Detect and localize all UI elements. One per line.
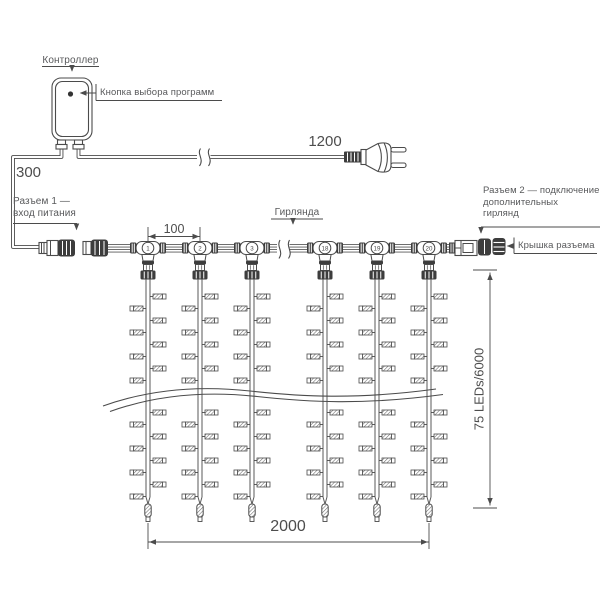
led-cap bbox=[392, 342, 396, 347]
led-bulb bbox=[205, 482, 215, 487]
led-bulb bbox=[257, 482, 267, 487]
garland-wiring-diagram: 123181920 bbox=[0, 0, 600, 600]
led-cap bbox=[163, 366, 167, 371]
led-cap bbox=[163, 410, 167, 415]
led-cap bbox=[359, 446, 363, 451]
led-cap bbox=[215, 318, 219, 323]
plug-prong bbox=[391, 148, 406, 153]
wire-break-icon bbox=[279, 240, 281, 259]
led-bulb bbox=[186, 354, 196, 359]
led-bulb bbox=[257, 458, 267, 463]
led-cap bbox=[307, 330, 311, 335]
led-bulb bbox=[186, 446, 196, 451]
led-cap bbox=[234, 306, 238, 311]
led-bulb bbox=[205, 342, 215, 347]
led-bulb bbox=[415, 378, 425, 383]
led-cap bbox=[267, 458, 271, 463]
led-cap bbox=[163, 318, 167, 323]
led-cap bbox=[340, 294, 344, 299]
led-cap bbox=[444, 294, 448, 299]
drop-number: 1 bbox=[146, 245, 150, 252]
drop-number: 18 bbox=[322, 245, 329, 252]
t-connector-wing bbox=[359, 243, 366, 254]
led-cap bbox=[359, 422, 363, 427]
led-cap bbox=[182, 470, 186, 475]
string-end-led bbox=[249, 504, 255, 517]
led-bulb bbox=[205, 458, 215, 463]
led-bulb bbox=[382, 342, 392, 347]
led-bulb bbox=[330, 342, 340, 347]
led-cap bbox=[411, 354, 415, 359]
drop-number: 3 bbox=[250, 245, 254, 252]
led-bulb bbox=[238, 354, 248, 359]
led-cap bbox=[444, 318, 448, 323]
led-cap bbox=[359, 470, 363, 475]
led-cap bbox=[267, 294, 271, 299]
t-connector-wing bbox=[234, 243, 241, 254]
led-cap bbox=[163, 342, 167, 347]
led-cap bbox=[392, 458, 396, 463]
led-bulb bbox=[311, 330, 321, 335]
led-cap bbox=[307, 378, 311, 383]
connector-cap bbox=[493, 238, 506, 255]
string-end-led bbox=[322, 504, 328, 517]
led-bulb bbox=[382, 434, 392, 439]
led-cap bbox=[182, 494, 186, 499]
led-bulb bbox=[311, 354, 321, 359]
led-cap bbox=[444, 366, 448, 371]
led-bulb bbox=[153, 458, 163, 463]
cable-break-icon bbox=[208, 149, 210, 167]
led-bulb bbox=[363, 354, 373, 359]
led-bulb bbox=[434, 410, 444, 415]
led-bulb bbox=[205, 434, 215, 439]
led-bulb bbox=[311, 470, 321, 475]
garland-drop: 19 bbox=[359, 242, 395, 522]
string-end-tip bbox=[198, 517, 202, 522]
string-end-led bbox=[197, 504, 203, 517]
plug-prong bbox=[391, 163, 406, 168]
string-end-tip bbox=[323, 517, 327, 522]
collar bbox=[321, 265, 330, 271]
collar bbox=[144, 265, 153, 271]
led-bulb bbox=[134, 446, 144, 451]
led-bulb bbox=[238, 330, 248, 335]
dim-2000-label: 2000 bbox=[256, 518, 320, 536]
led-cap bbox=[392, 434, 396, 439]
led-cap bbox=[307, 354, 311, 359]
led-cap bbox=[340, 482, 344, 487]
led-bulb bbox=[363, 306, 373, 311]
drop-number: 20 bbox=[426, 245, 433, 252]
led-bulb bbox=[330, 482, 340, 487]
led-bulb bbox=[186, 306, 196, 311]
led-cap bbox=[267, 366, 271, 371]
led-bulb bbox=[134, 306, 144, 311]
led-bulb bbox=[415, 446, 425, 451]
led-bulb bbox=[134, 354, 144, 359]
led-cap bbox=[411, 422, 415, 427]
stem-band bbox=[194, 261, 206, 265]
string-end-tip bbox=[427, 517, 431, 522]
led-cap bbox=[392, 410, 396, 415]
led-cap bbox=[182, 306, 186, 311]
led-cap bbox=[163, 434, 167, 439]
led-bulb bbox=[330, 434, 340, 439]
dim-1200-label: 1200 bbox=[303, 133, 347, 150]
power-cable-right bbox=[79, 148, 346, 166]
led-bulb bbox=[205, 318, 215, 323]
led-bulb bbox=[434, 342, 444, 347]
led-bulb bbox=[330, 458, 340, 463]
led-cap bbox=[163, 458, 167, 463]
connector1-label: Разъем 1 — вход питания bbox=[13, 196, 76, 219]
led-bulb bbox=[415, 422, 425, 427]
led-bulb bbox=[363, 422, 373, 427]
led-bulb bbox=[134, 422, 144, 427]
t-connector-wing bbox=[441, 243, 448, 254]
led-cap bbox=[215, 410, 219, 415]
led-bulb bbox=[382, 294, 392, 299]
connector-1 bbox=[39, 240, 75, 257]
program-button-label: Кнопка выбора программ bbox=[100, 87, 214, 98]
connector-2 bbox=[449, 239, 491, 256]
led-bulb bbox=[415, 306, 425, 311]
led-cap bbox=[163, 482, 167, 487]
led-bulb bbox=[415, 330, 425, 335]
led-cap bbox=[130, 354, 134, 359]
led-bulb bbox=[363, 470, 373, 475]
collar bbox=[373, 265, 382, 271]
t-connector-wing bbox=[337, 243, 344, 254]
stem-band bbox=[246, 261, 258, 265]
led-cap bbox=[411, 330, 415, 335]
led-cap bbox=[267, 410, 271, 415]
led-bulb bbox=[434, 458, 444, 463]
led-cap bbox=[340, 318, 344, 323]
dim-height-label: 75 LEDs/6000 bbox=[472, 320, 488, 459]
dim-300-label: 300 bbox=[16, 164, 41, 181]
string-end-led bbox=[426, 504, 432, 517]
led-bulb bbox=[153, 410, 163, 415]
garland-drop: 20 bbox=[411, 242, 447, 522]
led-bulb bbox=[153, 294, 163, 299]
led-bulb bbox=[382, 366, 392, 371]
collar bbox=[196, 265, 205, 271]
led-cap bbox=[340, 458, 344, 463]
led-bulb bbox=[257, 342, 267, 347]
connector1-label-line2: вход питания bbox=[13, 208, 76, 220]
garland-drop: 3 bbox=[234, 242, 270, 522]
led-bulb bbox=[238, 306, 248, 311]
curtain-layer: 123181920 bbox=[130, 242, 447, 522]
led-bulb bbox=[257, 434, 267, 439]
led-bulb bbox=[186, 378, 196, 383]
led-cap bbox=[182, 378, 186, 383]
led-cap bbox=[444, 434, 448, 439]
led-bulb bbox=[257, 410, 267, 415]
connector2-label-line2: дополнительных bbox=[483, 197, 600, 209]
connector1-label-line1: Разъем 1 — bbox=[13, 196, 76, 208]
led-bulb bbox=[363, 378, 373, 383]
led-bulb bbox=[330, 294, 340, 299]
led-cap bbox=[340, 366, 344, 371]
led-cap bbox=[234, 354, 238, 359]
led-bulb bbox=[153, 434, 163, 439]
led-bulb bbox=[153, 342, 163, 347]
led-bulb bbox=[153, 318, 163, 323]
led-bulb bbox=[238, 470, 248, 475]
led-cap bbox=[307, 470, 311, 475]
led-bulb bbox=[311, 446, 321, 451]
string-wire bbox=[198, 280, 202, 505]
string-end-tip bbox=[146, 517, 150, 522]
led-cap bbox=[182, 354, 186, 359]
led-bulb bbox=[382, 410, 392, 415]
led-bulb bbox=[186, 470, 196, 475]
led-cap bbox=[215, 342, 219, 347]
led-bulb bbox=[134, 330, 144, 335]
string-wire bbox=[375, 280, 379, 505]
connector2-label-line3: гирлянд bbox=[483, 208, 600, 220]
led-bulb bbox=[257, 294, 267, 299]
led-bulb bbox=[363, 494, 373, 499]
led-bulb bbox=[134, 378, 144, 383]
led-cap bbox=[234, 330, 238, 335]
led-bulb bbox=[434, 366, 444, 371]
led-cap bbox=[130, 422, 134, 427]
string-wire bbox=[323, 280, 327, 505]
led-cap bbox=[359, 306, 363, 311]
led-bulb bbox=[134, 494, 144, 499]
connector-1-mate bbox=[83, 240, 108, 257]
program-button-dot bbox=[68, 91, 73, 96]
led-bulb bbox=[363, 330, 373, 335]
garland-drop: 1 bbox=[130, 242, 166, 522]
led-cap bbox=[359, 378, 363, 383]
led-cap bbox=[234, 446, 238, 451]
stem-band bbox=[371, 261, 383, 265]
led-bulb bbox=[311, 422, 321, 427]
led-bulb bbox=[415, 494, 425, 499]
string-end-tip bbox=[250, 517, 254, 522]
led-cap bbox=[234, 422, 238, 427]
led-bulb bbox=[311, 306, 321, 311]
led-bulb bbox=[186, 330, 196, 335]
led-bulb bbox=[311, 494, 321, 499]
led-cap bbox=[130, 306, 134, 311]
led-cap bbox=[444, 410, 448, 415]
led-cap bbox=[444, 482, 448, 487]
diagram-page: 123181920 bbox=[0, 0, 600, 600]
led-cap bbox=[411, 470, 415, 475]
string-end-tip bbox=[375, 517, 379, 522]
led-cap bbox=[307, 446, 311, 451]
string-end-led bbox=[374, 504, 380, 517]
led-cap bbox=[392, 294, 396, 299]
t-connector-wing bbox=[212, 243, 219, 254]
led-cap bbox=[307, 306, 311, 311]
garland-drop: 2 bbox=[182, 242, 218, 522]
controller-label: Контроллер bbox=[42, 55, 99, 66]
collar bbox=[248, 265, 257, 271]
led-bulb bbox=[205, 366, 215, 371]
string-wire bbox=[146, 280, 150, 505]
led-cap bbox=[340, 434, 344, 439]
led-cap bbox=[444, 458, 448, 463]
led-cap bbox=[215, 294, 219, 299]
led-cap bbox=[359, 330, 363, 335]
led-bulb bbox=[153, 482, 163, 487]
led-bulb bbox=[363, 446, 373, 451]
led-cap bbox=[130, 446, 134, 451]
led-bulb bbox=[153, 366, 163, 371]
led-bulb bbox=[205, 410, 215, 415]
t-connector-wing bbox=[307, 243, 314, 254]
led-cap bbox=[215, 458, 219, 463]
led-cap bbox=[411, 378, 415, 383]
led-cap bbox=[307, 494, 311, 499]
stem-band bbox=[423, 261, 435, 265]
led-cap bbox=[215, 482, 219, 487]
t-connector-wing bbox=[389, 243, 396, 254]
controller-box bbox=[52, 78, 92, 149]
led-cap bbox=[267, 482, 271, 487]
t-connector-wing bbox=[182, 243, 189, 254]
led-bulb bbox=[382, 318, 392, 323]
led-bulb bbox=[238, 378, 248, 383]
t-connector-wing bbox=[130, 243, 137, 254]
led-bulb bbox=[434, 294, 444, 299]
led-cap bbox=[267, 434, 271, 439]
led-bulb bbox=[238, 446, 248, 451]
led-bulb bbox=[415, 354, 425, 359]
t-connector-wing bbox=[411, 243, 418, 254]
led-bulb bbox=[257, 318, 267, 323]
led-cap bbox=[392, 482, 396, 487]
led-cap bbox=[359, 494, 363, 499]
led-cap bbox=[267, 318, 271, 323]
led-bulb bbox=[205, 294, 215, 299]
led-cap bbox=[411, 306, 415, 311]
led-cap bbox=[182, 446, 186, 451]
connector2-label-line1: Разъем 2 — подключение bbox=[483, 185, 600, 197]
led-cap bbox=[392, 366, 396, 371]
led-cap bbox=[392, 318, 396, 323]
drop-number: 19 bbox=[374, 245, 381, 252]
led-cap bbox=[182, 422, 186, 427]
led-cap bbox=[130, 378, 134, 383]
mains-plug bbox=[344, 143, 406, 173]
led-bulb bbox=[238, 422, 248, 427]
connector-cap-label: Крышка разъема bbox=[518, 240, 595, 251]
led-bulb bbox=[434, 318, 444, 323]
led-bulb bbox=[415, 470, 425, 475]
led-bulb bbox=[434, 434, 444, 439]
led-cap bbox=[215, 366, 219, 371]
led-cap bbox=[234, 470, 238, 475]
string-wire bbox=[427, 280, 431, 505]
led-bulb bbox=[382, 458, 392, 463]
led-cap bbox=[234, 494, 238, 499]
led-bulb bbox=[330, 318, 340, 323]
wave-break-icon bbox=[103, 389, 443, 412]
led-bulb bbox=[330, 366, 340, 371]
led-cap bbox=[359, 354, 363, 359]
led-cap bbox=[234, 378, 238, 383]
led-cap bbox=[215, 434, 219, 439]
t-connector-wing bbox=[160, 243, 167, 254]
led-cap bbox=[130, 470, 134, 475]
led-cap bbox=[340, 410, 344, 415]
led-bulb bbox=[434, 482, 444, 487]
collar bbox=[425, 265, 434, 271]
led-bulb bbox=[330, 410, 340, 415]
t-connector-wing bbox=[264, 243, 271, 254]
led-cap bbox=[267, 342, 271, 347]
led-cap bbox=[340, 342, 344, 347]
drop-number: 2 bbox=[198, 245, 202, 252]
led-cap bbox=[307, 422, 311, 427]
led-cap bbox=[130, 494, 134, 499]
connector2-label: Разъем 2 — подключение дополнительных ги… bbox=[483, 185, 600, 220]
led-bulb bbox=[134, 470, 144, 475]
led-cap bbox=[130, 330, 134, 335]
led-bulb bbox=[186, 494, 196, 499]
led-bulb bbox=[238, 494, 248, 499]
led-cap bbox=[444, 342, 448, 347]
stem-band bbox=[319, 261, 331, 265]
cable-break-icon bbox=[199, 149, 201, 167]
led-cap bbox=[411, 446, 415, 451]
garland-drop: 18 bbox=[307, 242, 343, 522]
led-bulb bbox=[257, 366, 267, 371]
led-bulb bbox=[311, 378, 321, 383]
led-cap bbox=[163, 294, 167, 299]
led-bulb bbox=[186, 422, 196, 427]
led-bulb bbox=[382, 482, 392, 487]
string-end-led bbox=[145, 504, 151, 517]
stem-band bbox=[142, 261, 154, 265]
wire-break-icon bbox=[288, 240, 290, 259]
led-cap bbox=[182, 330, 186, 335]
garland-label: Гирлянда bbox=[271, 207, 323, 218]
led-cap bbox=[411, 494, 415, 499]
dim-100-label: 100 bbox=[160, 222, 188, 236]
